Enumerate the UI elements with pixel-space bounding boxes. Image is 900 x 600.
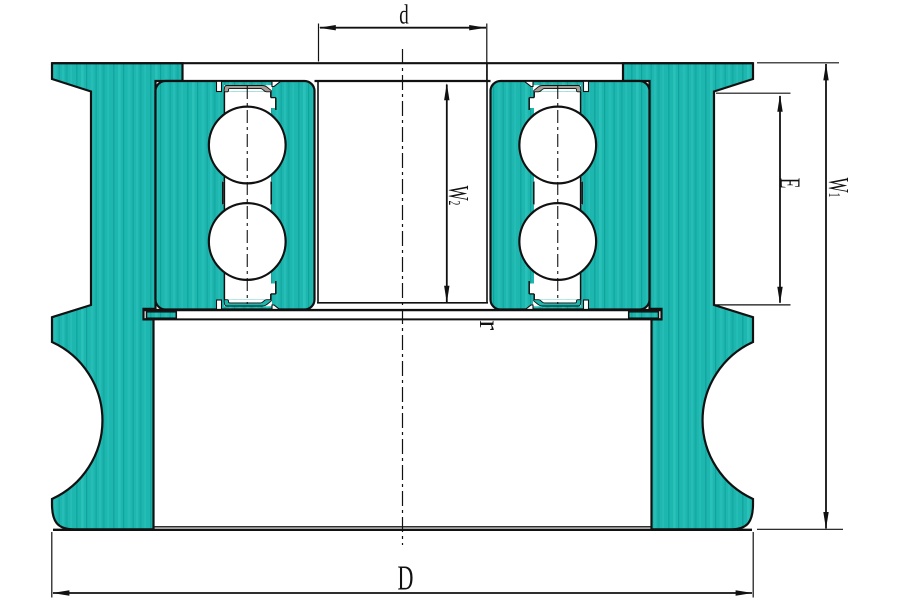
svg-text:D: D bbox=[398, 560, 414, 598]
svg-text:E: E bbox=[773, 178, 805, 189]
svg-text:r: r bbox=[473, 320, 506, 330]
svg-text:d: d bbox=[399, 0, 409, 30]
